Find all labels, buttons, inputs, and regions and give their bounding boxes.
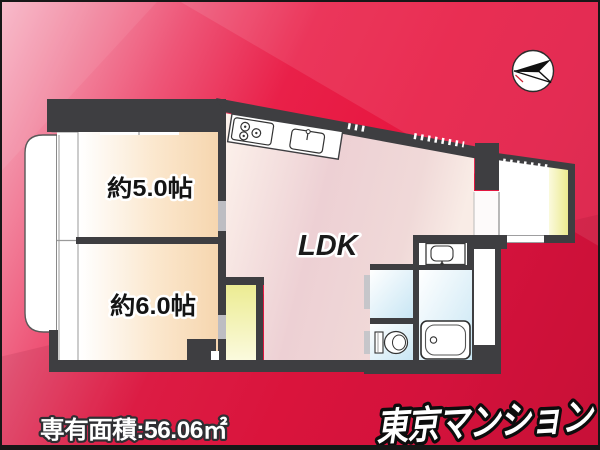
corridor <box>474 249 495 345</box>
brand-logo: 東京マンション <box>375 396 596 449</box>
floorplan-image: 約5.0帖 約6.0帖 LDK 専有面積:56.06㎡ 東京マンション <box>0 0 600 450</box>
door-room6 <box>218 315 226 339</box>
balcony <box>25 135 57 332</box>
window-strip <box>57 132 80 360</box>
toilet-icon <box>375 332 408 354</box>
washroom <box>370 270 413 318</box>
north-arrow-icon <box>513 51 554 92</box>
ldk-label: LDK <box>298 230 360 262</box>
washbasin-icon <box>426 244 465 266</box>
floorplan-drawing: 約5.0帖 約6.0帖 LDK 専有面積:56.06㎡ 東京マンション <box>2 2 600 450</box>
hall <box>474 191 499 235</box>
entrance-door-opening <box>507 236 544 243</box>
door-toilet <box>364 331 370 354</box>
shoe-cabinet <box>549 165 568 235</box>
door-washroom <box>364 275 370 309</box>
room6-label: 約6.0帖 <box>110 292 196 320</box>
area-label: 専有面積:56.06㎡ <box>40 416 227 444</box>
closet-room6 <box>226 285 256 360</box>
room5-label: 約5.0帖 <box>107 175 193 201</box>
bathtub-icon <box>421 321 470 359</box>
pillar <box>475 143 499 190</box>
wall-notch <box>211 351 219 360</box>
door-room5 <box>218 201 226 231</box>
